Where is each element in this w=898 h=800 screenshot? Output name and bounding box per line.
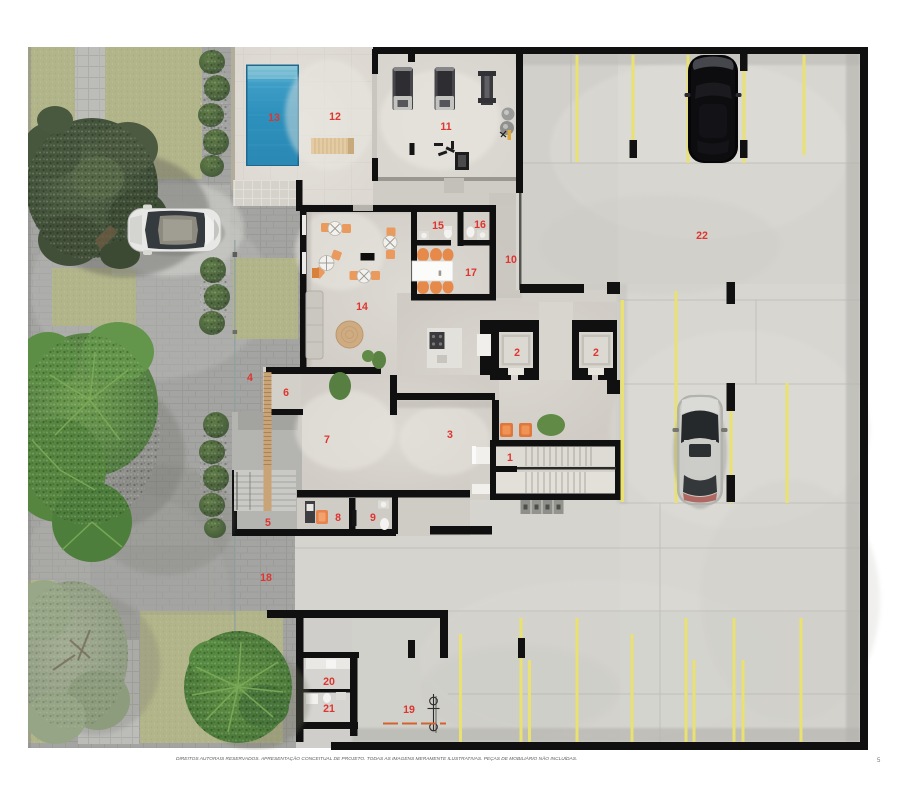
svg-text:20: 20 xyxy=(323,676,335,688)
svg-text:▮: ▮ xyxy=(438,270,442,277)
svg-text:18: 18 xyxy=(260,572,272,584)
svg-text:4: 4 xyxy=(247,372,254,384)
svg-text:3: 3 xyxy=(447,429,453,441)
svg-text:2: 2 xyxy=(593,347,599,359)
svg-text:12: 12 xyxy=(329,111,341,123)
svg-text:6: 6 xyxy=(283,387,289,399)
svg-text:22: 22 xyxy=(696,230,708,242)
svg-text:7: 7 xyxy=(324,434,330,446)
svg-text:15: 15 xyxy=(432,220,444,232)
svg-text:19: 19 xyxy=(403,704,415,716)
svg-text:5: 5 xyxy=(265,517,271,529)
svg-text:10: 10 xyxy=(505,254,517,266)
svg-text:DIREITOS AUTORAIS RESERVADOS.: DIREITOS AUTORAIS RESERVADOS. APRESENTAÇ… xyxy=(176,755,577,762)
svg-text:16: 16 xyxy=(474,219,486,231)
svg-text:11: 11 xyxy=(440,121,451,133)
svg-text:13: 13 xyxy=(268,112,280,124)
svg-text:14: 14 xyxy=(356,301,369,313)
svg-text:8: 8 xyxy=(335,512,341,524)
svg-text:1: 1 xyxy=(507,452,513,464)
svg-text:9: 9 xyxy=(370,512,376,524)
svg-text:17: 17 xyxy=(465,267,477,279)
svg-text:21: 21 xyxy=(323,703,335,715)
svg-text:2: 2 xyxy=(514,347,520,359)
